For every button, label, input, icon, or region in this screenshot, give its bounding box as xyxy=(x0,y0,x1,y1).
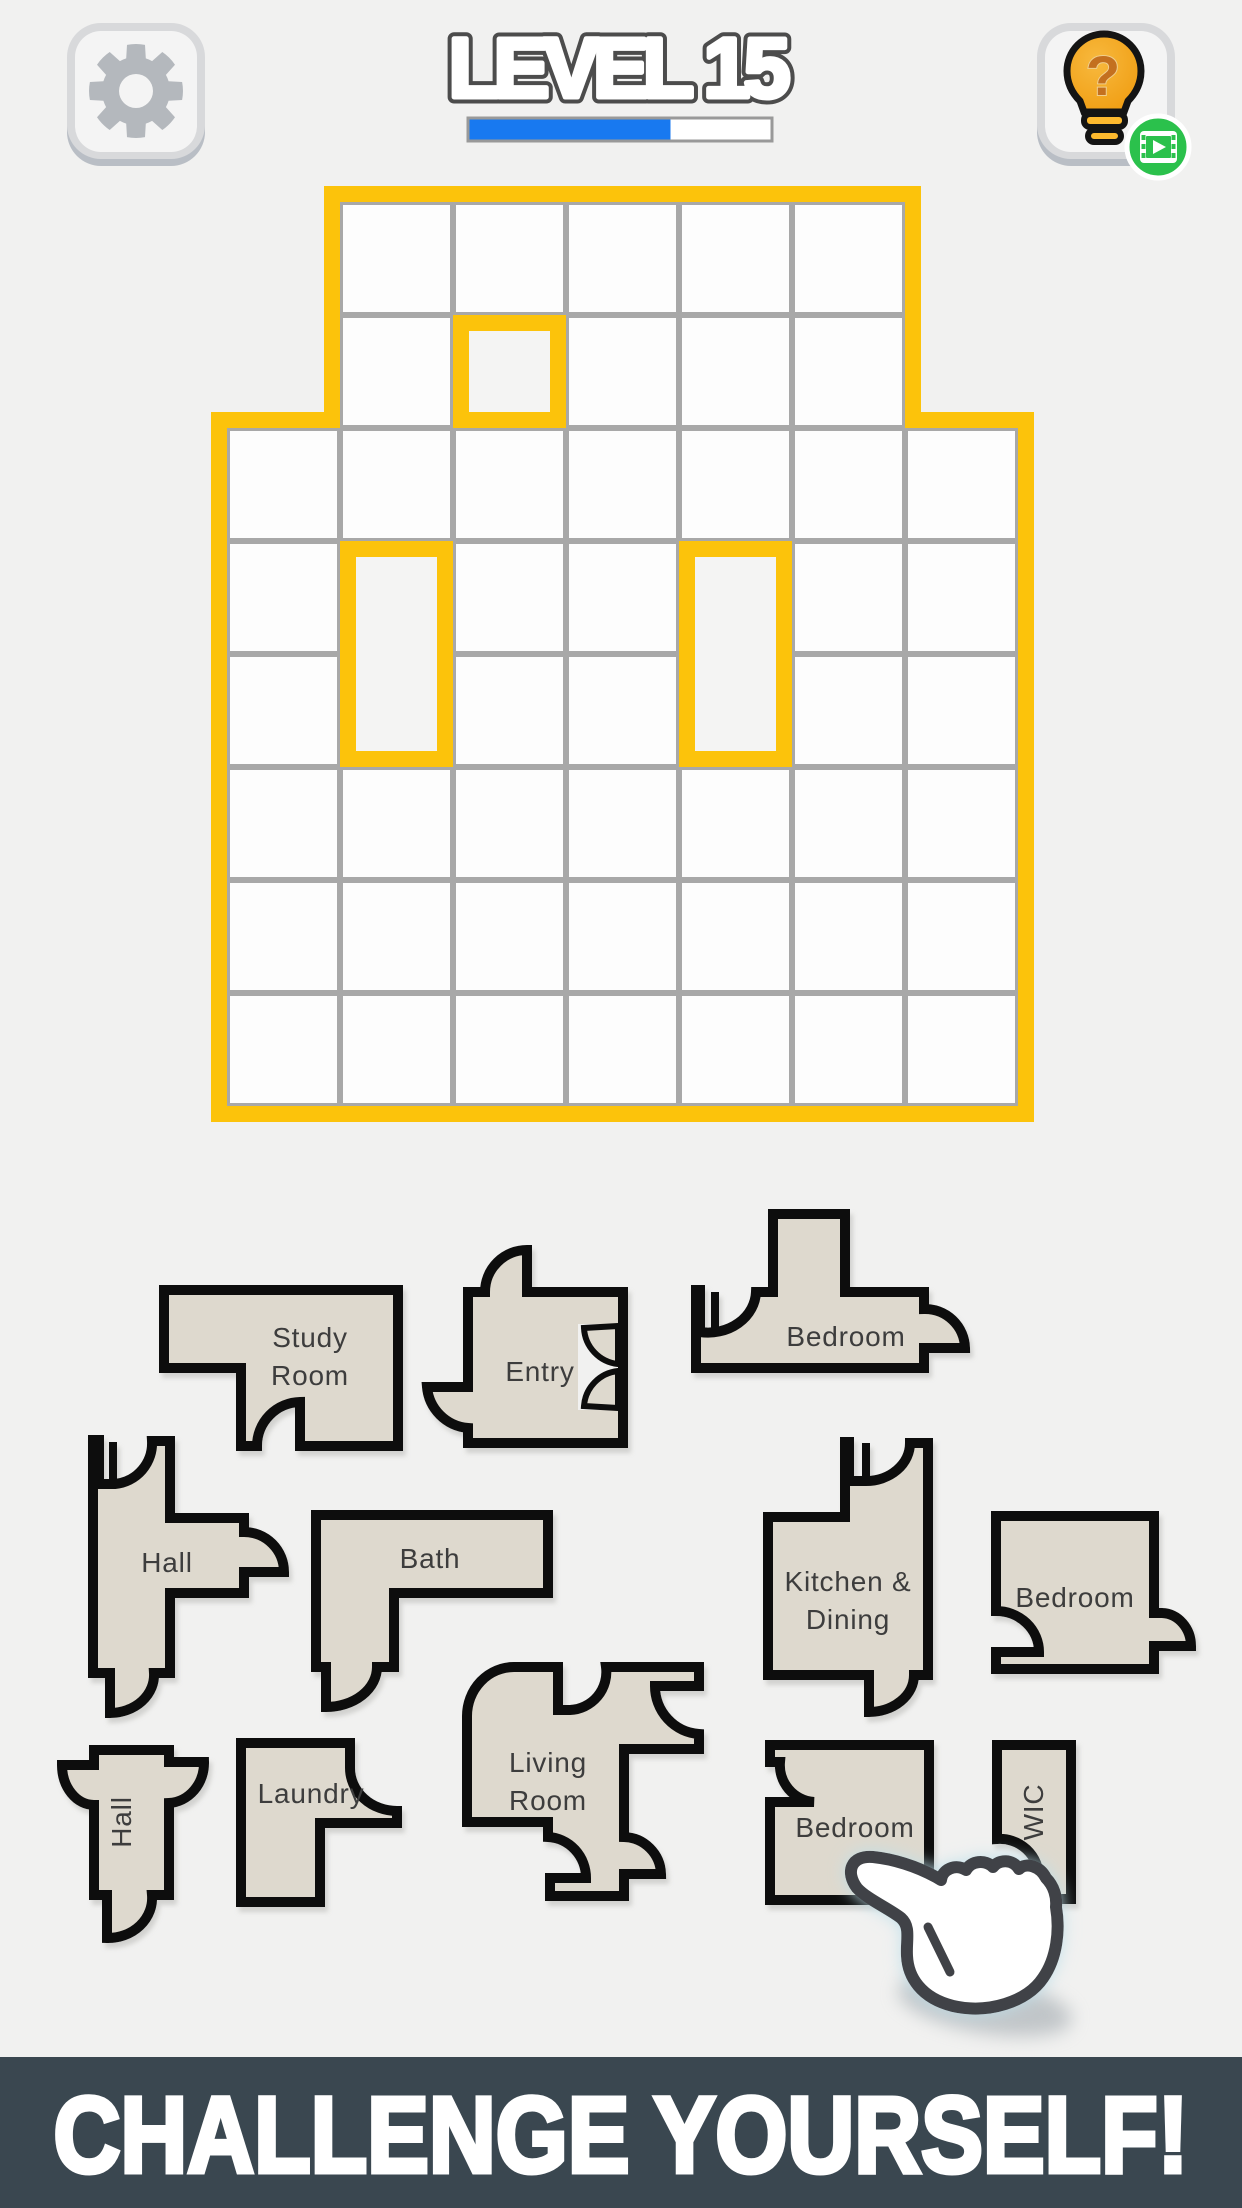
svg-text:Laundry: Laundry xyxy=(258,1778,365,1809)
svg-text:Entry: Entry xyxy=(505,1356,574,1387)
svg-text:Hall: Hall xyxy=(141,1547,192,1578)
svg-text:LEVEL 15: LEVEL 15 xyxy=(449,21,794,115)
svg-text:Kitchen &: Kitchen & xyxy=(784,1566,911,1597)
svg-text:Hall: Hall xyxy=(106,1796,137,1847)
svg-text:WIC: WIC xyxy=(1018,1784,1049,1841)
svg-text:CHALLENGE YOURSELF!: CHALLENGE YOURSELF! xyxy=(54,2074,1189,2195)
svg-text:Bedroom: Bedroom xyxy=(795,1812,914,1843)
svg-text:Study: Study xyxy=(272,1322,348,1353)
svg-text:Bath: Bath xyxy=(400,1543,461,1574)
svg-text:?: ? xyxy=(1086,44,1120,107)
svg-text:Room: Room xyxy=(271,1360,349,1391)
svg-text:Dining: Dining xyxy=(806,1604,890,1635)
svg-text:Bedroom: Bedroom xyxy=(786,1321,905,1352)
svg-text:Living: Living xyxy=(509,1747,587,1778)
svg-text:Bedroom: Bedroom xyxy=(1015,1582,1134,1613)
svg-text:Room: Room xyxy=(509,1785,587,1816)
